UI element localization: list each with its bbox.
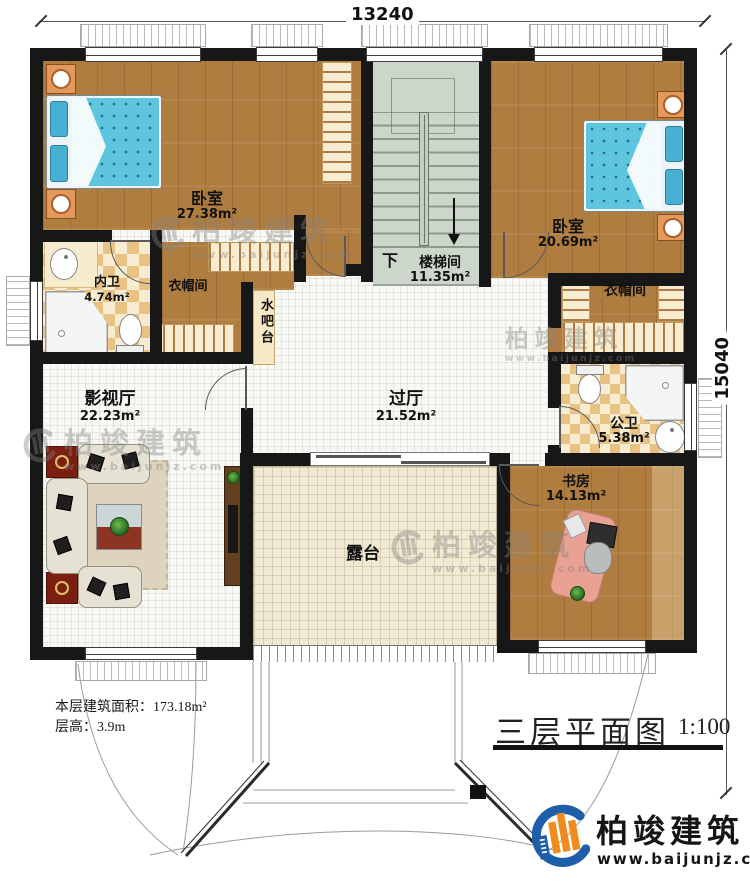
stair-arrow-head xyxy=(448,234,460,245)
eave-top-2 xyxy=(251,24,323,47)
wall-closetright-left xyxy=(548,273,561,328)
dimension-line-right xyxy=(726,50,727,795)
room-name: 公卫 xyxy=(598,416,649,432)
room-label-hallway: 过厅 21.52m² xyxy=(376,390,436,424)
wall-study-top xyxy=(545,453,697,466)
floor-study-light-strip xyxy=(652,466,684,640)
room-name: 衣帽间 xyxy=(168,280,207,295)
wall-stair-right xyxy=(479,48,491,287)
wardrobe-bedroom-left xyxy=(322,62,352,184)
room-name: 过厅 xyxy=(376,390,436,410)
room-area: 20.69m² xyxy=(538,236,598,251)
sink xyxy=(50,248,78,280)
dimension-top-value: 13240 xyxy=(346,4,419,25)
desk-chair xyxy=(584,542,612,574)
door-leaf-bedroom-right xyxy=(503,232,505,278)
side-table xyxy=(46,446,78,478)
floor-plan: 卧室 27.38m² 内卫 4.74m² 衣帽间 水吧台 下 楼梯间 11.35… xyxy=(0,0,750,883)
wall-bath-left-a xyxy=(548,352,561,408)
wall-innerbath-closet xyxy=(150,230,162,358)
wall-closetleft-hall xyxy=(241,282,253,364)
toilet xyxy=(578,374,601,404)
window-top-1 xyxy=(85,47,201,62)
door-leaf-public-bath xyxy=(559,406,561,448)
nightstand xyxy=(46,189,76,219)
room-area: 11.35m² xyxy=(410,271,470,286)
bed-right xyxy=(583,120,687,212)
room-name: 楼梯间 xyxy=(410,255,470,271)
room-label-inner-bath: 内卫 4.74m² xyxy=(84,276,129,304)
bed-left xyxy=(46,95,162,189)
nightstand xyxy=(46,64,76,94)
room-label-stairwell: 楼梯间 11.35m² xyxy=(410,255,470,286)
sofa xyxy=(78,566,142,608)
eave-top-3 xyxy=(361,24,488,47)
bed-pillow xyxy=(665,126,683,162)
window-right-bath xyxy=(684,383,697,451)
wall-bedroomleft-south xyxy=(30,230,112,242)
window-study-bottom xyxy=(538,640,646,653)
room-label-closet-right: 衣帽间 xyxy=(604,283,646,299)
company-website: www.baijunjz.com xyxy=(597,850,750,868)
room-area: 22.23m² xyxy=(80,410,140,425)
eave-media-bottom xyxy=(75,661,207,681)
room-name: 露台 xyxy=(346,545,380,565)
shower-drain xyxy=(662,382,669,389)
room-name: 衣帽间 xyxy=(604,283,646,299)
shower-drain xyxy=(58,330,65,337)
room-label-public-bath: 公卫 5.38m² xyxy=(598,416,649,447)
plant xyxy=(110,517,129,536)
window-top-2 xyxy=(256,47,318,62)
platform-left xyxy=(6,276,30,346)
room-label-bedroom-left: 卧室 27.38m² xyxy=(177,190,237,223)
window-top-3 xyxy=(366,47,483,62)
window-left xyxy=(30,281,43,341)
room-name: 影视厅 xyxy=(80,390,140,410)
sink xyxy=(655,421,685,453)
bed-pillow xyxy=(50,145,68,182)
company-name: 柏竣建筑 xyxy=(596,806,744,852)
company-logo xyxy=(532,804,590,874)
note-floor-area: 本层建筑面积：173.18m² xyxy=(55,696,207,716)
stair-direction-label: 下 xyxy=(382,247,398,271)
room-name: 卧室 xyxy=(538,218,598,236)
drawing-scale: 1:100 xyxy=(678,714,730,740)
door-leaf-study xyxy=(499,464,539,466)
eave-top-4 xyxy=(529,24,668,47)
room-label-study: 书房 14.13m² xyxy=(546,474,606,505)
wall-terrace-left xyxy=(240,453,253,660)
room-label-water-bar: 水吧台 xyxy=(256,298,275,346)
toilet xyxy=(119,314,142,346)
room-name: 书房 xyxy=(546,474,606,490)
room-label-closet-left: 衣帽间 xyxy=(168,280,207,295)
stair-direction-arrow xyxy=(453,198,455,236)
room-area: 21.52m² xyxy=(376,410,436,425)
room-label-media-room: 影视厅 22.23m² xyxy=(80,390,140,424)
eave-top-1 xyxy=(80,24,206,47)
title-underline xyxy=(493,745,723,750)
room-area: 4.74m² xyxy=(84,291,129,304)
room-label-bedroom-right: 卧室 20.69m² xyxy=(538,218,598,251)
wall-media-top xyxy=(30,352,241,364)
bed-pillow xyxy=(50,101,68,138)
sofa xyxy=(46,478,88,574)
room-area: 27.38m² xyxy=(177,208,237,223)
tv xyxy=(228,505,238,553)
company-logo-icon xyxy=(532,804,590,874)
terrace-sliding-door xyxy=(310,452,490,466)
room-area: 14.13m² xyxy=(546,490,606,505)
wall-bath-top xyxy=(548,352,697,364)
eave-study-bottom xyxy=(528,653,656,674)
hanger-rack xyxy=(208,242,294,272)
room-label-terrace: 露台 xyxy=(346,545,380,565)
wall-stair-left xyxy=(361,48,373,282)
room-name: 卧室 xyxy=(177,190,237,208)
door-leaf-media-room xyxy=(245,366,247,410)
stair-rail xyxy=(419,112,429,246)
window-top-4 xyxy=(534,47,663,62)
note-floor-height: 层高：3.9m xyxy=(55,716,125,736)
door-leaf-bedroom-left xyxy=(344,236,346,277)
side-table xyxy=(46,572,78,604)
window-media-bottom xyxy=(85,647,197,660)
hanger-rack xyxy=(562,322,686,354)
room-name: 内卫 xyxy=(84,276,129,291)
bed-pillow xyxy=(665,169,683,205)
terrace-railing xyxy=(253,645,497,662)
sofa xyxy=(78,444,150,484)
dimension-right-value: 15040 xyxy=(712,332,733,405)
wall-right xyxy=(684,48,697,653)
plant xyxy=(227,471,240,484)
plant xyxy=(570,586,585,601)
wall-vestibule-v xyxy=(294,215,306,282)
door-leaf-inner-bath xyxy=(110,240,150,242)
room-area: 5.38m² xyxy=(598,432,649,447)
